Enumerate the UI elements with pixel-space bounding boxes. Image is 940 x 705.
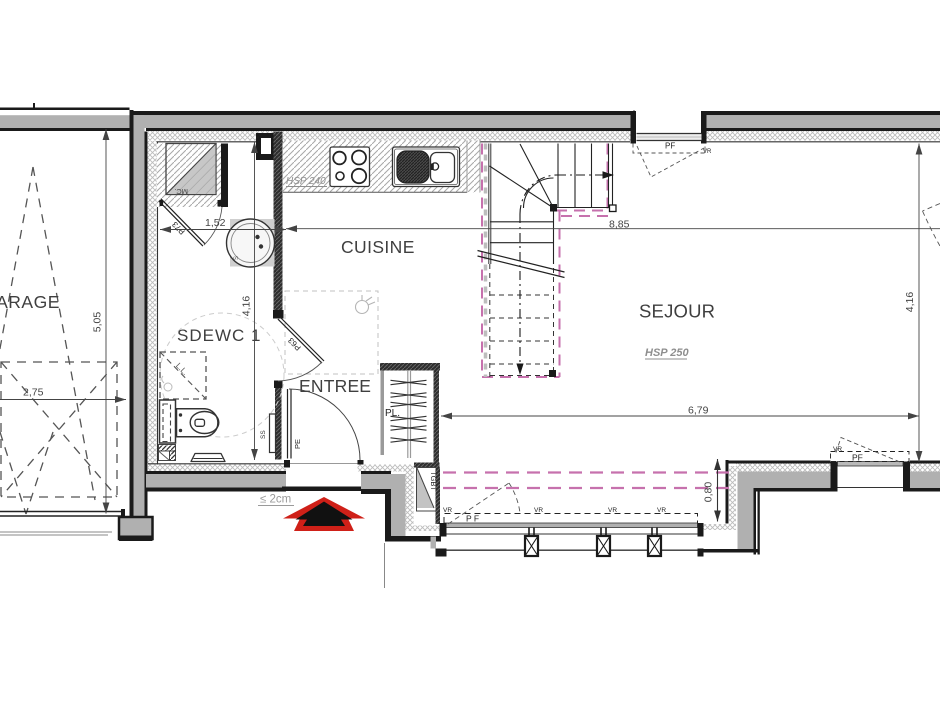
svg-text:VR: VR	[534, 507, 543, 514]
svg-text:VR: VR	[703, 149, 712, 155]
svg-text:GARAGE: GARAGE	[0, 292, 60, 312]
svg-text:CUISINE: CUISINE	[341, 237, 415, 257]
svg-text:HSP 240: HSP 240	[286, 176, 326, 187]
svg-text:PF: PF	[665, 142, 675, 151]
svg-text:S: S	[234, 256, 240, 260]
svg-text:≤ 2cm: ≤ 2cm	[260, 494, 291, 506]
svg-text:PE: PE	[293, 439, 302, 449]
svg-text:1,52: 1,52	[205, 217, 226, 229]
svg-text:PL.: PL.	[385, 408, 400, 419]
svg-text:ENTREE: ENTREE	[299, 376, 371, 396]
svg-text:VR: VR	[608, 507, 617, 514]
svg-text:SDEWC 1: SDEWC 1	[177, 326, 261, 345]
svg-text:P F: P F	[466, 514, 479, 524]
svg-text:4,16: 4,16	[904, 292, 916, 313]
svg-text:5,05: 5,05	[92, 312, 104, 333]
svg-text:SS: SS	[260, 430, 267, 439]
svg-text:HSP 250: HSP 250	[645, 347, 690, 359]
svg-text:2,75: 2,75	[23, 387, 44, 399]
svg-text:0,80: 0,80	[703, 482, 715, 503]
svg-text:6,79: 6,79	[688, 405, 709, 417]
svg-text:8,85: 8,85	[609, 219, 630, 231]
svg-text:MC.: MC.	[174, 187, 188, 196]
svg-text:4,16: 4,16	[241, 296, 253, 317]
svg-text:VR: VR	[657, 507, 666, 514]
svg-text:SEJOUR: SEJOUR	[639, 301, 715, 322]
svg-text:VR: VR	[443, 507, 452, 514]
svg-text:PF: PF	[852, 453, 863, 463]
